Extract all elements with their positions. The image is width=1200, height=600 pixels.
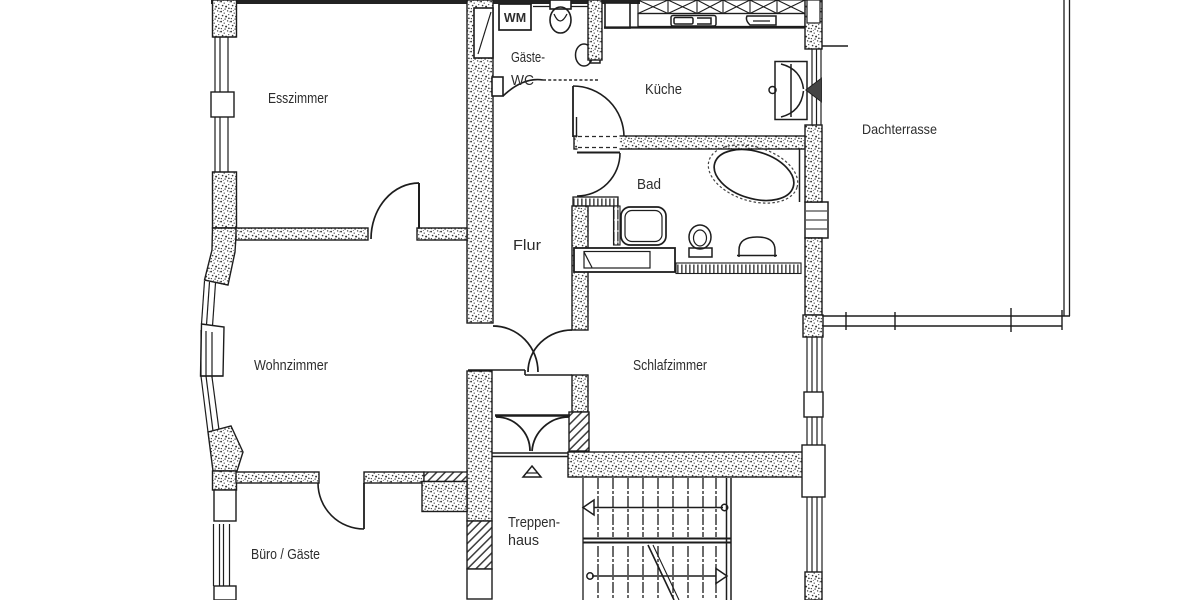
svg-text:Büro / Gäste: Büro / Gäste — [251, 546, 320, 563]
svg-text:Wohnzimmer: Wohnzimmer — [254, 357, 328, 374]
svg-text:Esszimmer: Esszimmer — [268, 90, 328, 107]
svg-text:Schlafzimmer: Schlafzimmer — [633, 357, 707, 374]
svg-text:Flur: Flur — [513, 237, 541, 254]
svg-text:Gäste-: Gäste- — [511, 50, 545, 66]
svg-text:WC: WC — [511, 73, 534, 89]
svg-text:Dachterrasse: Dachterrasse — [862, 121, 937, 137]
svg-text:WM: WM — [504, 11, 526, 25]
svg-text:haus: haus — [508, 532, 539, 549]
svg-text:Küche: Küche — [645, 81, 682, 98]
svg-text:Treppen-: Treppen- — [508, 514, 560, 531]
svg-text:Bad: Bad — [637, 176, 661, 193]
